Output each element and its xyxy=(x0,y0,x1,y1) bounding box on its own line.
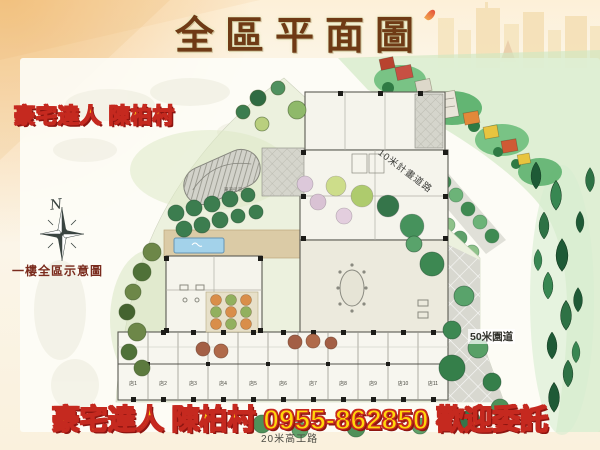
shop-unit-label: 店1 xyxy=(118,380,148,387)
shop-unit-label: 店4 xyxy=(208,380,238,387)
shop-unit-label: 店7 xyxy=(298,380,328,387)
slide: 全區平面圖 豪宅達人 陳柏村 N 一樓全區示意圖 10米計畫道路 50米園道 2… xyxy=(0,0,600,450)
compass-north-label: N xyxy=(49,196,63,214)
page-title: 全區平面圖 xyxy=(0,5,600,61)
contact-banner: 豪宅達人 陳柏村 0955-862850 歡迎委託 xyxy=(0,398,600,438)
shop-unit-label: 店3 xyxy=(178,380,208,387)
planter-grid xyxy=(206,292,258,332)
shop-unit-label: 店5 xyxy=(238,380,268,387)
agent-badge: 豪宅達人 陳柏村 xyxy=(14,100,175,130)
shop-unit-label: 店11 xyxy=(418,380,448,387)
shop-unit-label: 店8 xyxy=(328,380,358,387)
shop-unit-label: 店10 xyxy=(388,380,418,387)
shop-unit-labels: 店1 店2 店3 店4 店5 店6 店7 店8 店9 店10 店11 xyxy=(118,380,448,387)
driveway-label: 車道引道 xyxy=(224,187,242,193)
shop-unit-label: 店9 xyxy=(358,380,388,387)
road-label-50m-parkway: 50米園道 xyxy=(468,329,515,344)
shop-unit-label: 店6 xyxy=(268,380,298,387)
area-caption: 一樓全區示意圖 xyxy=(12,262,103,279)
shop-unit-label: 店2 xyxy=(148,380,178,387)
